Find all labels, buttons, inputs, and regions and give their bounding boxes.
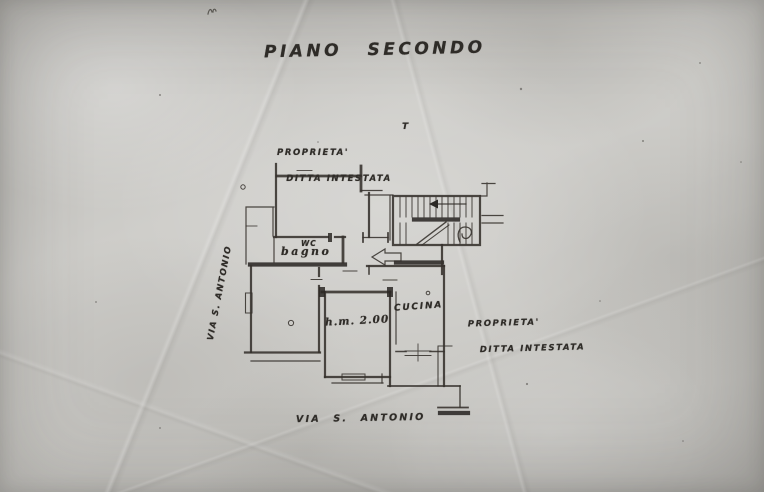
street-label-bottom: VIA S. ANTONIO (296, 412, 426, 425)
scanned-paper-page: PIANO SECONDO PROPRIETA' DITTA INTESTATA… (0, 0, 764, 492)
property-label-right-line1: PROPRIETA' (461, 315, 585, 331)
property-label-top-line1: PROPRIETA' (268, 147, 392, 160)
property-label-right-line2: DITTA INTESTATA (480, 342, 586, 355)
property-label-top: PROPRIETA' DITTA INTESTATA (268, 121, 392, 199)
room-label-bagno: bagno (281, 245, 331, 258)
thin-lines (246, 171, 504, 408)
property-label-top-line2: DITTA INTESTATA (286, 174, 392, 184)
property-label-right: PROPRIETA' DITTA INTESTATA (460, 289, 586, 370)
stair-tee-mark: T (402, 122, 408, 132)
paper-corner-mark (208, 9, 216, 14)
paper-specks (95, 62, 742, 442)
